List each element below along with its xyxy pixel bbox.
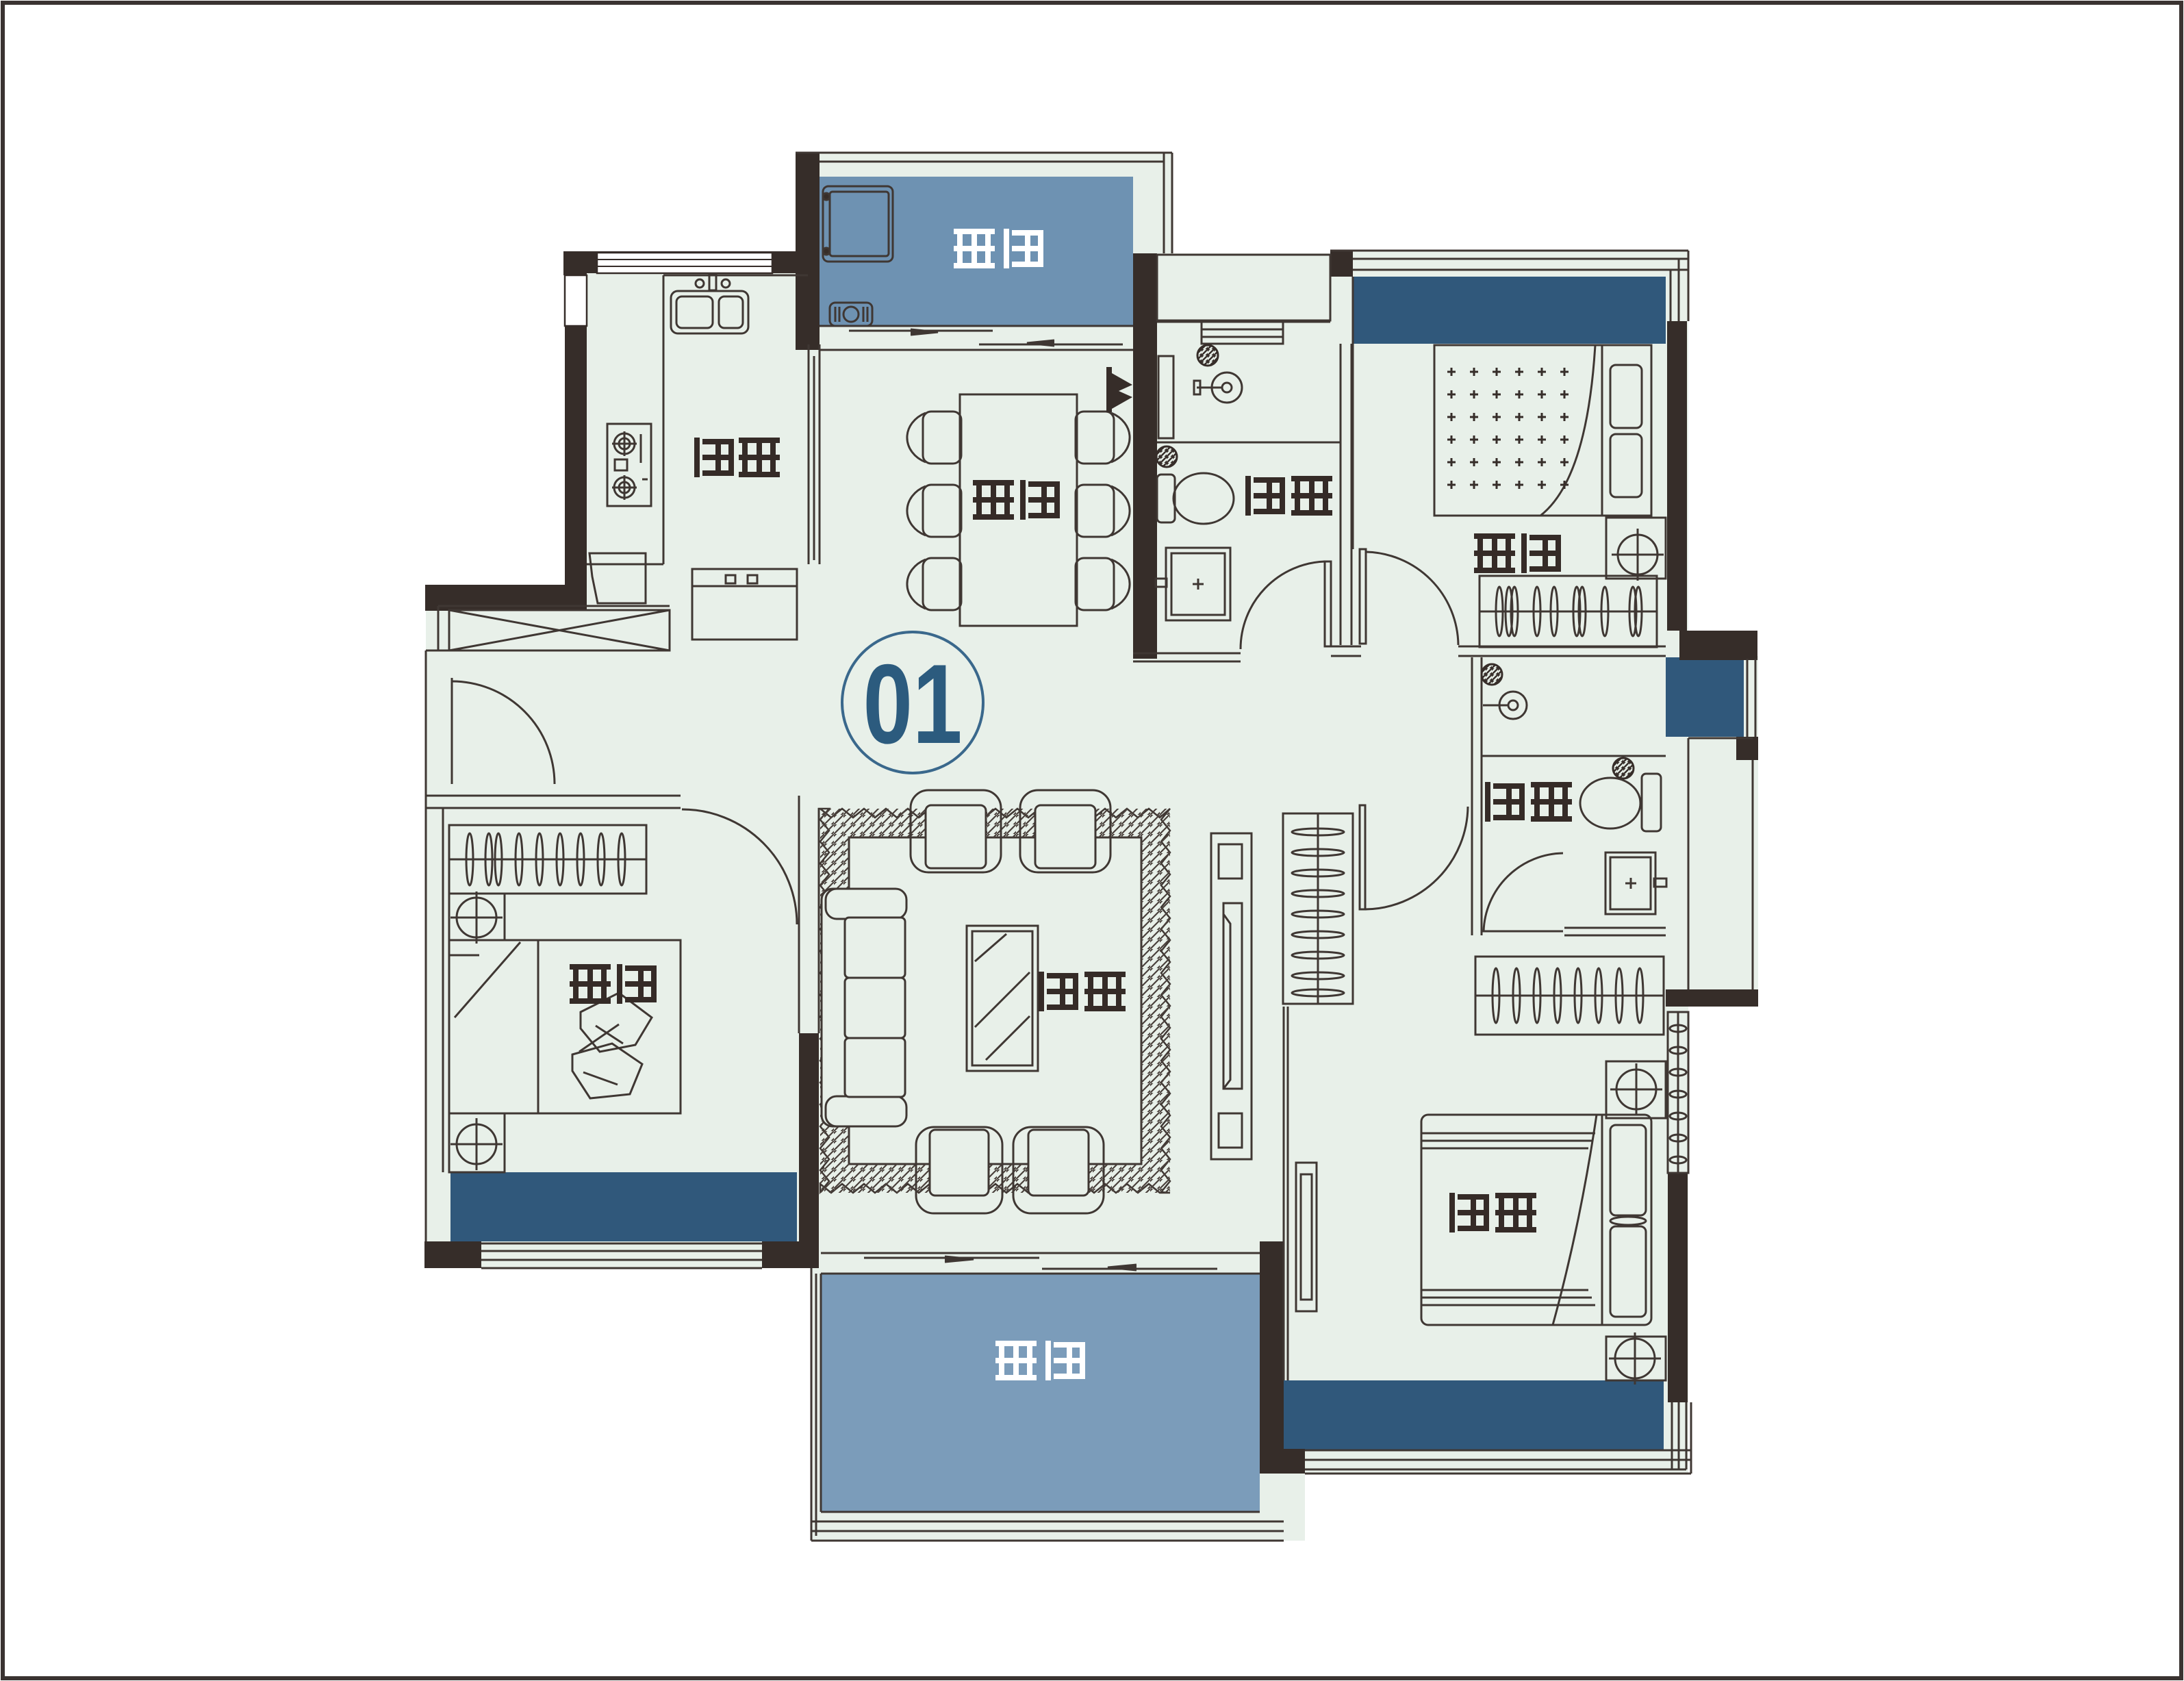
svg-text:01: 01 <box>863 641 963 767</box>
